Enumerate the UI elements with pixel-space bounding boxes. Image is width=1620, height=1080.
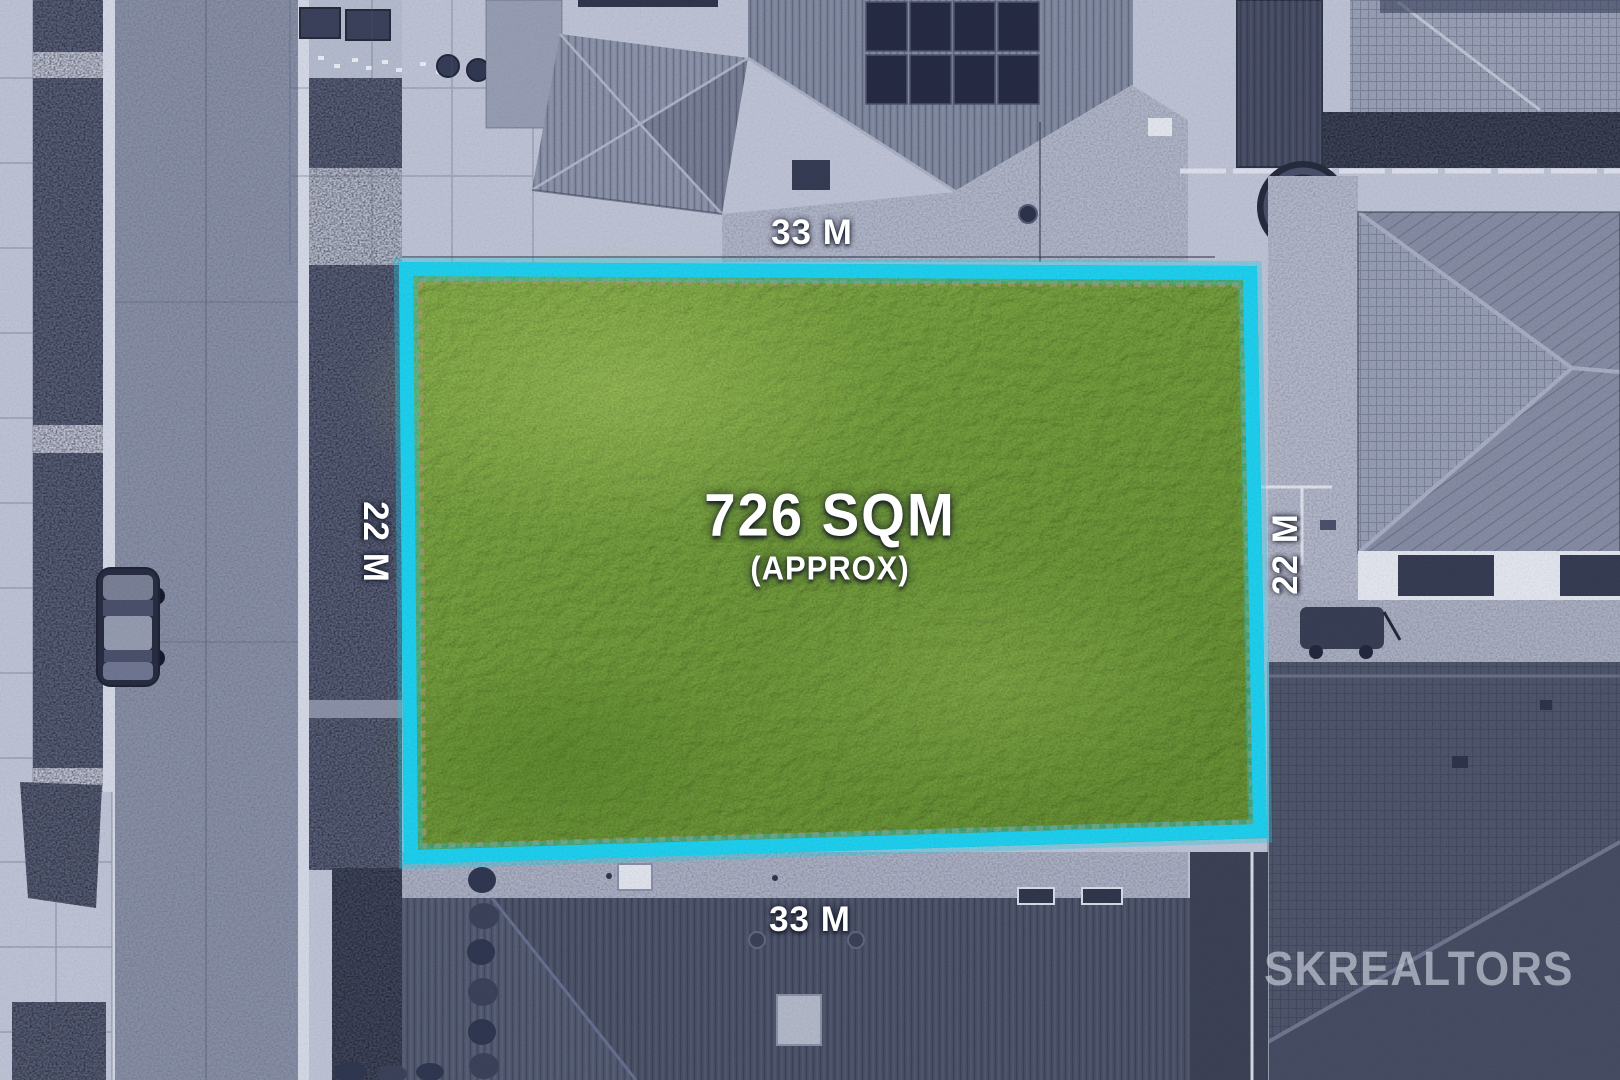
aerial-lot-photo: 33 M 33 M 22 M 22 M 726 SQM (APPROX) SKR… xyxy=(0,0,1620,1080)
dimension-label-bottom: 33 M xyxy=(769,900,851,940)
brand-watermark: SKREALTORS xyxy=(1264,942,1573,997)
dimension-label-top: 33 M xyxy=(771,213,853,253)
dimension-label-right: 22 M xyxy=(1266,513,1306,595)
lot-area-qualifier: (APPROX) xyxy=(704,550,955,588)
dimension-label-left: 22 M xyxy=(355,501,395,583)
lot-area-callout: 726 SQM (APPROX) xyxy=(704,484,955,587)
lot-area-label: 726 SQM xyxy=(704,484,955,545)
